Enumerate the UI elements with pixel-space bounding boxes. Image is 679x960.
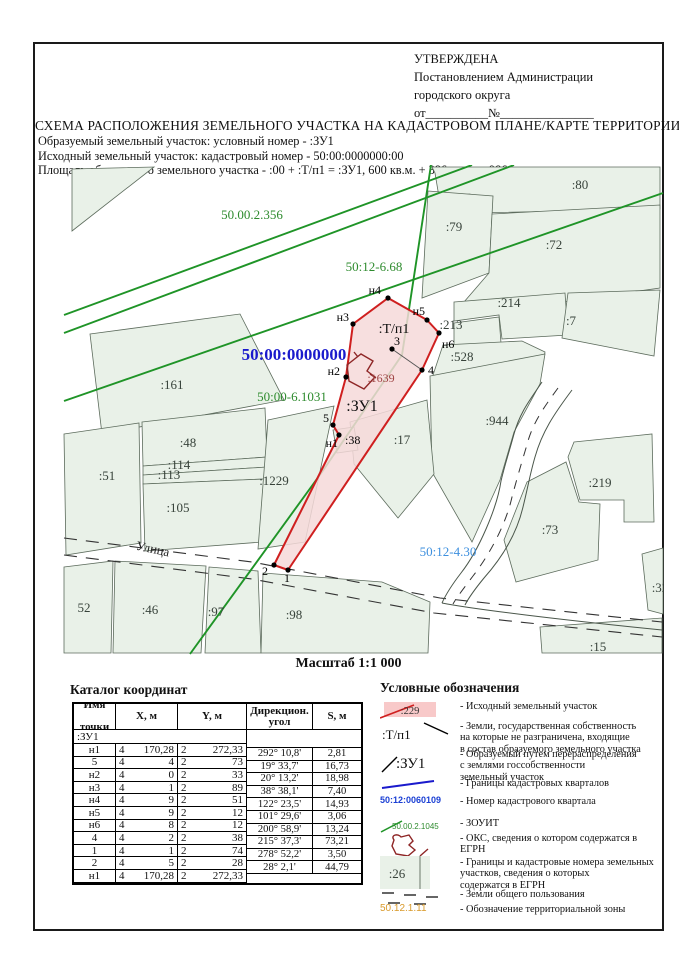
y-prefix: 2 [181, 857, 187, 869]
hdr-line: угол [269, 717, 291, 728]
cell-x: 49 [116, 794, 178, 807]
boundary-point [419, 367, 424, 372]
map-zone-label: 50:00-6.1031 [257, 389, 327, 404]
cell-distance: 2,81 [313, 748, 361, 761]
map-parcel-label: :15 [590, 639, 607, 654]
table-row: 442238 [74, 832, 246, 845]
y-suffix: 12 [232, 807, 243, 819]
y-suffix: 89 [232, 782, 243, 794]
table-spacer-row [247, 730, 361, 748]
legend-swatch [380, 777, 460, 791]
cell-angle: 122° 23,5' [247, 798, 313, 811]
cell-x: 44 [116, 757, 178, 770]
map-parcel-label: :46 [142, 602, 159, 617]
cell-distance: 44,79 [313, 861, 361, 874]
map-point-label: н6 [442, 337, 454, 351]
approval-line: Постановлением Администрации [414, 68, 594, 86]
map-zone-label: 50:00:0000000 [242, 345, 347, 364]
map-parcel-label: :1229 [259, 473, 289, 488]
legend-swatch: :229 [380, 700, 460, 720]
svg-text::ЗУ1: :ЗУ1 [396, 756, 425, 772]
map-parcel-label: :944 [485, 413, 509, 428]
quarter-number-sample: 50:12:0060109 [380, 795, 441, 805]
table-row: н240233 [74, 769, 246, 782]
map-point-label: н2 [328, 364, 340, 378]
cell-point-name: н4 [74, 794, 116, 807]
cell-distance: 18,98 [313, 773, 361, 786]
cell-y: 251 [178, 794, 246, 807]
legend-item-text: - Границы кадастровых кварталов [460, 777, 609, 791]
map-parcel-label: :73 [542, 522, 559, 537]
cell-angle: 278° 52,2' [247, 849, 313, 862]
legend-text-line: - Образуемый путем перераспределения [460, 749, 637, 760]
map-parcel-label: :79 [446, 219, 463, 234]
legend-item-text: - Границы и кадастровые номера земельных… [460, 856, 654, 891]
map-point-label: н1 [326, 436, 338, 450]
table-segment-row: 19° 33,7'16,73 [247, 761, 361, 774]
svg-text::229: :229 [401, 706, 420, 717]
x-suffix: 9 [169, 794, 175, 806]
y-suffix: 74 [232, 845, 243, 857]
y-prefix: 2 [181, 832, 187, 844]
table-segment-row: 292° 10,8'2,81 [247, 748, 361, 761]
map-parcel-label: :97 [208, 604, 225, 619]
cell-y: 212 [178, 820, 246, 833]
map-unit-label: :1639 [367, 371, 394, 385]
cell-point-name: н6 [74, 820, 116, 833]
map-zone-label: 50:12-4.30 [420, 544, 477, 559]
cell-point-name: 4 [74, 832, 116, 845]
legend-text-line: участков, сведения о которых [460, 868, 654, 879]
map-point-label: 1 [284, 571, 290, 585]
col-header-point-name: Имяточки [74, 704, 116, 730]
x-suffix: 170,28 [144, 870, 174, 882]
col-header-y: Y, м [178, 704, 246, 730]
x-suffix: 170,28 [144, 744, 174, 756]
y-suffix: 33 [232, 769, 243, 781]
map-parcel [72, 167, 154, 231]
legend-text-line: - Земли, государственная собственность [460, 721, 641, 732]
hdr-line: точки [80, 722, 109, 730]
map-parcel [464, 205, 660, 302]
cell-angle: 28° 2,1' [247, 861, 313, 874]
map-point-label: н4 [369, 283, 381, 297]
map-parcel-label: :213 [439, 317, 462, 332]
cell-distance: 7,40 [313, 786, 361, 799]
table-segment-row: 20° 13,2'18,98 [247, 773, 361, 786]
y-suffix: 12 [232, 820, 243, 832]
territorial-zone-sample: 50.12.1.11 [380, 903, 427, 914]
table-row: н449251 [74, 794, 246, 807]
cell-distance: 73,21 [313, 836, 361, 849]
map-parcel [64, 423, 141, 555]
map-parcel-label: :219 [588, 475, 611, 490]
group-row: :ЗУ1 [74, 730, 246, 744]
table-segment-row: 28° 2,1'44,79 [247, 861, 361, 874]
map-zone-label: 50:12-6.68 [346, 259, 403, 274]
document-frame: УТВЕРЖДЕНА Постановлением Администрации … [33, 42, 664, 931]
cell-y: 238 [178, 832, 246, 845]
cell-distance: 3,50 [313, 849, 361, 862]
x-suffix: 4 [169, 757, 175, 769]
map-parcel-label: :80 [572, 177, 589, 192]
cell-x: 45 [116, 857, 178, 870]
y-prefix: 2 [181, 782, 187, 794]
legend-item-text: - Номер кадастрового квартала [460, 795, 596, 807]
quarter-boundary-swatch [380, 777, 440, 791]
approval-block: УТВЕРЖДЕНА Постановлением Администрации … [414, 50, 594, 122]
cell-x: 42 [116, 832, 178, 845]
y-suffix: 28 [232, 857, 243, 869]
table-segment-row: 215° 37,3'73,21 [247, 836, 361, 849]
boundary-point [330, 422, 335, 427]
x-suffix: 1 [169, 782, 175, 794]
table-segment-row: 101° 29,6'3,06 [247, 811, 361, 824]
cell-y: 289 [178, 782, 246, 795]
table-row: 141274 [74, 845, 246, 858]
map-parcel [113, 561, 206, 653]
x-prefix: 4 [119, 832, 125, 844]
table-segment-row: 278° 52,2'3,50 [247, 849, 361, 862]
boundary-point [385, 295, 390, 300]
legend-text-line: - Границы кадастровых кварталов [460, 778, 609, 789]
cell-angle: 215° 37,3' [247, 836, 313, 849]
table-row: н648212 [74, 820, 246, 833]
map-parcel-label: :51 [99, 468, 116, 483]
cell-distance: 14,93 [313, 798, 361, 811]
x-prefix: 4 [119, 857, 125, 869]
map-parcel-label: :98 [286, 607, 303, 622]
cell-distance: 3,06 [313, 811, 361, 824]
y-suffix: 38 [232, 832, 243, 844]
cell-y: 273 [178, 757, 246, 770]
egrn-parcel-swatch: :26 [380, 856, 440, 890]
cell-y: 228 [178, 857, 246, 870]
cell-point-name: н2 [74, 769, 116, 782]
legend-text-line: - Обозначение территориальной зоны [460, 904, 625, 915]
x-prefix: 4 [119, 870, 125, 882]
hdr-line: Дирекцион. [250, 706, 309, 717]
map-parcel-label: :72 [546, 237, 563, 252]
map-parcel-label: :113 [158, 467, 181, 482]
map-parcel-label: :32 [652, 580, 664, 595]
cell-y: 233 [178, 769, 246, 782]
table-row: 544273 [74, 757, 246, 770]
x-prefix: 4 [119, 820, 125, 832]
map-point-label: н5 [413, 304, 425, 318]
map-parcel-label: :17 [394, 432, 411, 447]
legend-text-line: - Номер кадастрового квартала [460, 796, 596, 807]
legend-text-line: - Границы и кадастровые номера земельных [460, 857, 654, 868]
cell-angle: 38° 38,1' [247, 786, 313, 799]
x-suffix: 0 [169, 769, 175, 781]
y-suffix: 272,33 [213, 870, 243, 882]
table-segment-row: 122° 23,5'14,93 [247, 798, 361, 811]
legend-text-line: на которые не разграничена, входящие [460, 732, 641, 743]
legend-swatch: 50:12:0060109 [380, 795, 460, 807]
source-parcel-swatch: :229 [380, 700, 450, 720]
y-suffix: 51 [232, 794, 243, 806]
cell-point-name: 2 [74, 857, 116, 870]
zu1-swatch: :ЗУ1 [380, 748, 452, 774]
map-point-label: 3 [394, 334, 400, 348]
map-parcel-label: :528 [450, 349, 473, 364]
page-canvas: УТВЕРЖДЕНА Постановлением Администрации … [0, 0, 679, 960]
cell-x: 48 [116, 820, 178, 833]
svg-text:50.00.2.1045: 50.00.2.1045 [392, 822, 439, 831]
table-row: 245228 [74, 857, 246, 870]
map-point-label: 2 [262, 564, 268, 578]
table-header-row: ИмяточкиX, мY, м [74, 704, 246, 730]
table-row: н14170,282272,33 [74, 870, 246, 883]
cell-x: 41 [116, 782, 178, 795]
legend-item-bluetext: 50:12:0060109- Номер кадастрового кварта… [380, 795, 596, 807]
cell-angle: 200° 58,9' [247, 824, 313, 837]
x-prefix: 4 [119, 782, 125, 794]
legend-item-text: - Обозначение территориальной зоны [460, 903, 625, 915]
map-parcel [562, 290, 660, 356]
cell-angle: 19° 33,7' [247, 761, 313, 774]
y-prefix: 2 [181, 744, 187, 756]
boundary-point [343, 374, 348, 379]
x-prefix: 4 [119, 794, 125, 806]
x-suffix: 2 [169, 832, 175, 844]
cell-x: 40 [116, 769, 178, 782]
cell-point-name: н3 [74, 782, 116, 795]
col-header-x: X, м [116, 704, 178, 730]
svg-text::Т/п1: :Т/п1 [382, 727, 411, 742]
cell-point-name: н1 [74, 870, 116, 883]
coordinate-catalog-title: Каталог координат [70, 682, 187, 698]
table-row: н341289 [74, 782, 246, 795]
x-suffix: 8 [169, 820, 175, 832]
tpn1-swatch: :Т/п1 [380, 720, 452, 744]
cell-angle: 20° 13,2' [247, 773, 313, 786]
legend-text-line: - ЗОУИТ [460, 818, 499, 829]
legend-item-pink: :229- Исходный земельный участок [380, 700, 597, 720]
table-segment-row: 38° 38,1'7,40 [247, 786, 361, 799]
y-prefix: 2 [181, 845, 187, 857]
cell-y: 2272,33 [178, 744, 246, 757]
cell-point-name: 1 [74, 845, 116, 858]
map-parcel [143, 479, 265, 551]
map-parcel-label: 52 [78, 600, 91, 615]
x-prefix: 4 [119, 845, 125, 857]
cell-x: 49 [116, 807, 178, 820]
y-prefix: 2 [181, 820, 187, 832]
cadastral-map: :80:79:72:214:213:7:528:944:161:48:114:1… [33, 165, 664, 657]
cell-x: 4170,28 [116, 744, 178, 757]
x-prefix: 4 [119, 757, 125, 769]
boundary-point [350, 321, 355, 326]
legend-item-orangetext: 50.12.1.11- Обозначение территориальной … [380, 903, 625, 915]
map-parcel-label: :105 [166, 500, 189, 515]
y-suffix: 73 [232, 757, 243, 769]
table-row: н14170,282272,33 [74, 744, 246, 757]
table-left-columns: ИмяточкиX, мY, м:ЗУ1н14170,282272,335442… [74, 704, 246, 883]
map-point-label: н3 [337, 310, 349, 324]
y-prefix: 2 [181, 807, 187, 819]
map-parcel-label: :7 [566, 313, 577, 328]
table-row: н549212 [74, 807, 246, 820]
legend-text-line: - Земли общего пользования [460, 889, 585, 900]
legend-item-blueline: - Границы кадастровых кварталов [380, 777, 609, 791]
legend-item-text: - Исходный земельный участок [460, 700, 597, 720]
y-suffix: 272,33 [213, 744, 243, 756]
col-header-angle: Дирекцион.угол [247, 704, 313, 730]
legend-title: Условные обозначения [380, 680, 519, 696]
map-zone-label: 50.00.2.356 [221, 207, 283, 222]
map-point-label: :38 [345, 433, 360, 447]
cell-x: 4170,28 [116, 870, 178, 883]
y-prefix: 2 [181, 870, 187, 882]
approval-line: УТВЕРЖДЕНА [414, 50, 594, 68]
hdr-line: Имя [84, 704, 106, 711]
table-right-columns: Дирекцион.уголS, м292° 10,8'2,8119° 33,7… [246, 704, 361, 883]
approval-line: городского округа [414, 86, 594, 104]
subtitle-line-formed-parcel: Образуемый земельный участок: условный н… [38, 134, 536, 149]
coordinate-table: ИмяточкиX, мY, м:ЗУ1н14170,282272,335442… [72, 702, 363, 885]
map-parcel-label: :161 [160, 377, 183, 392]
x-suffix: 5 [169, 857, 175, 869]
y-prefix: 2 [181, 794, 187, 806]
legend-item-greenparcel: :26- Границы и кадастровые номера земель… [380, 856, 654, 891]
cell-y: 274 [178, 845, 246, 858]
cell-y: 212 [178, 807, 246, 820]
map-point-label: 4 [428, 363, 434, 377]
legend-text-line: - ОКС, сведения о котором содержатся в Е… [460, 833, 662, 856]
cell-distance: 16,73 [313, 761, 361, 774]
map-scale-label: Масштаб 1:1 000 [35, 656, 662, 672]
cell-point-name: 5 [74, 757, 116, 770]
map-parcel-label: :48 [180, 435, 197, 450]
boundary-point [424, 317, 429, 322]
y-prefix: 2 [181, 757, 187, 769]
x-prefix: 4 [119, 744, 125, 756]
y-prefix: 2 [181, 769, 187, 781]
map-parcel-label: :214 [497, 295, 521, 310]
map-unit-label: :ЗУ1 [346, 398, 377, 415]
cell-y: 2272,33 [178, 870, 246, 883]
x-suffix: 1 [169, 845, 175, 857]
document-title: СХЕМА РАСПОЛОЖЕНИЯ ЗЕМЕЛЬНОГО УЧАСТКА НА… [35, 118, 662, 134]
cell-angle: 292° 10,8' [247, 748, 313, 761]
x-suffix: 9 [169, 807, 175, 819]
legend-text-line: - Исходный земельный участок [460, 701, 597, 712]
svg-text::26: :26 [389, 866, 406, 881]
x-prefix: 4 [119, 769, 125, 781]
legend-swatch: 50.12.1.11 [380, 903, 460, 915]
map-point-label: 5 [323, 411, 329, 425]
cell-x: 41 [116, 845, 178, 858]
table-header-row: Дирекцион.уголS, м [247, 704, 361, 730]
legend-text-line: с землями госсобственности [460, 760, 637, 771]
cell-point-name: н1 [74, 744, 116, 757]
x-prefix: 4 [119, 807, 125, 819]
cell-angle: 101° 29,6' [247, 811, 313, 824]
boundary-point [271, 562, 276, 567]
subtitle-line-source-parcel: Исходный земельный участок: кадастровый … [38, 149, 536, 164]
col-header-s: S, м [313, 704, 361, 730]
cell-distance: 13,24 [313, 824, 361, 837]
cell-point-name: н5 [74, 807, 116, 820]
legend-swatch: :26 [380, 856, 460, 891]
table-segment-row: 200° 58,9'13,24 [247, 824, 361, 837]
